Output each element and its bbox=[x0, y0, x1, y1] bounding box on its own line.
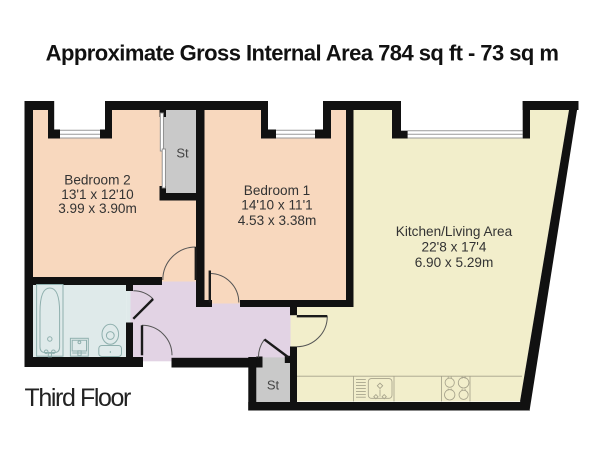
svg-text:4.53 x 3.38m: 4.53 x 3.38m bbox=[238, 213, 317, 228]
svg-text:St: St bbox=[176, 146, 189, 161]
svg-text:13'1 x 12'10: 13'1 x 12'10 bbox=[61, 187, 134, 202]
svg-text:6.90 x 5.29m: 6.90 x 5.29m bbox=[415, 255, 494, 270]
svg-text:Third Floor: Third Floor bbox=[25, 384, 132, 412]
svg-text:Bedroom 2: Bedroom 2 bbox=[64, 173, 131, 188]
svg-text:St: St bbox=[267, 378, 280, 393]
svg-text:Bedroom 1: Bedroom 1 bbox=[244, 183, 311, 198]
svg-text:3.99 x 3.90m: 3.99 x 3.90m bbox=[58, 201, 137, 216]
svg-text:Approximate Gross Internal Are: Approximate Gross Internal Area 784 sq f… bbox=[46, 41, 559, 66]
svg-text:22'8 x 17'4: 22'8 x 17'4 bbox=[422, 240, 487, 255]
svg-text:14'10 x 11'1: 14'10 x 11'1 bbox=[241, 198, 312, 213]
svg-text:Kitchen/Living Area: Kitchen/Living Area bbox=[396, 224, 513, 239]
